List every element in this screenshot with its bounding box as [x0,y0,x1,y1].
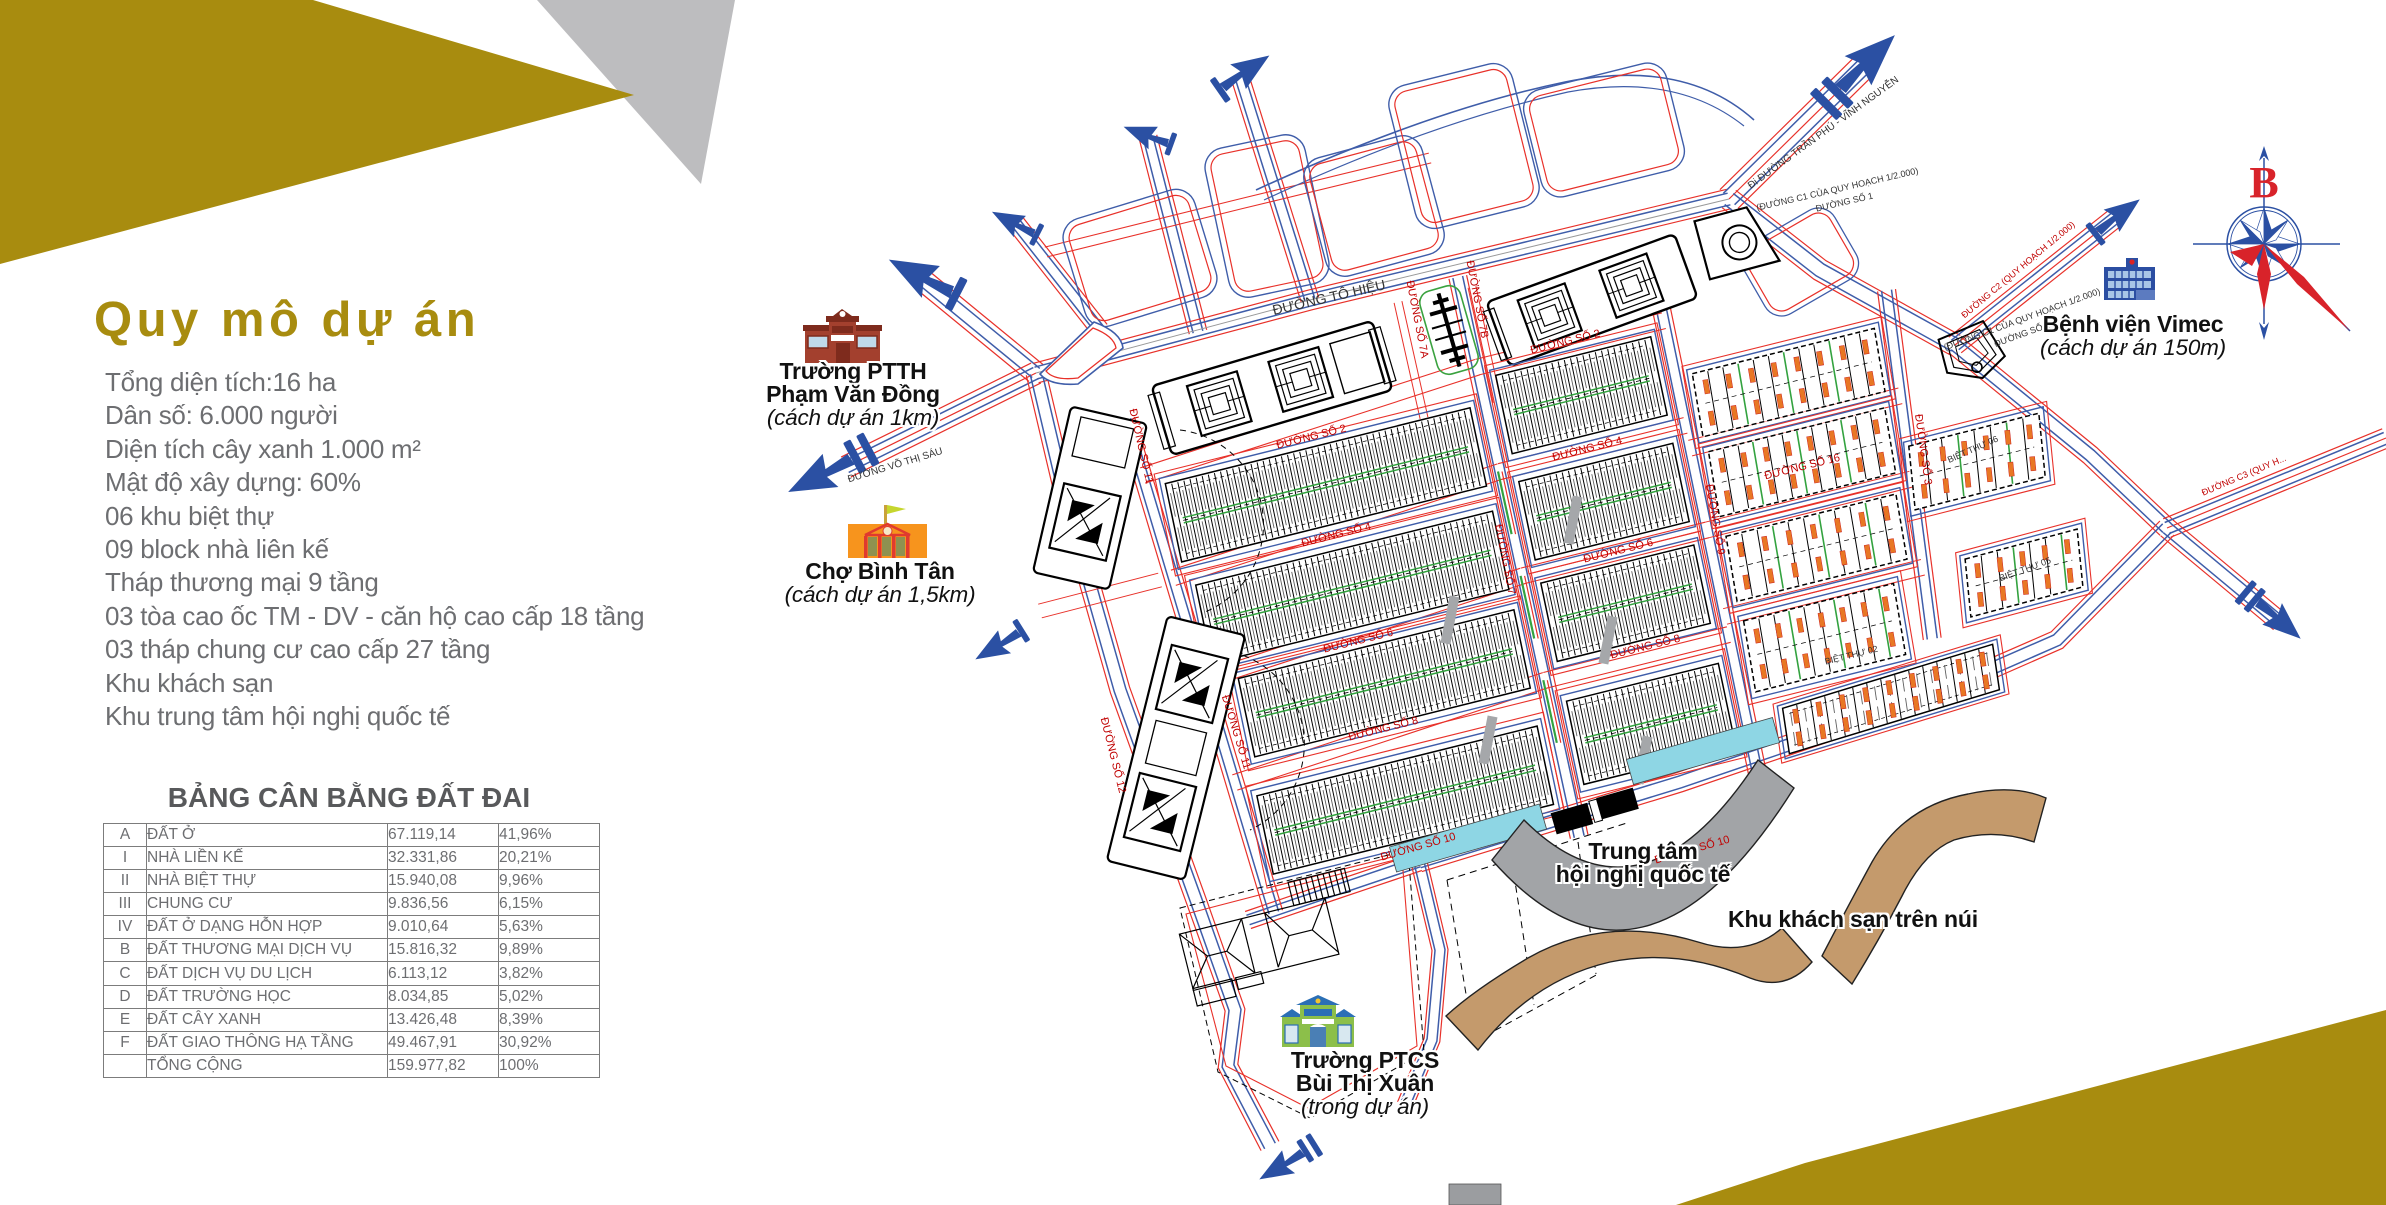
svg-text:ĐƯỜNG SỐ 12: ĐƯỜNG SỐ 12 [1098,716,1130,795]
svg-text:Đi ĐƯỜNG TRẦN PHÚ - VĨNH NGUYỄ: Đi ĐƯỜNG TRẦN PHÚ - VĨNH NGUYỄN [1745,73,1901,191]
svg-text:B: B [2249,158,2278,207]
